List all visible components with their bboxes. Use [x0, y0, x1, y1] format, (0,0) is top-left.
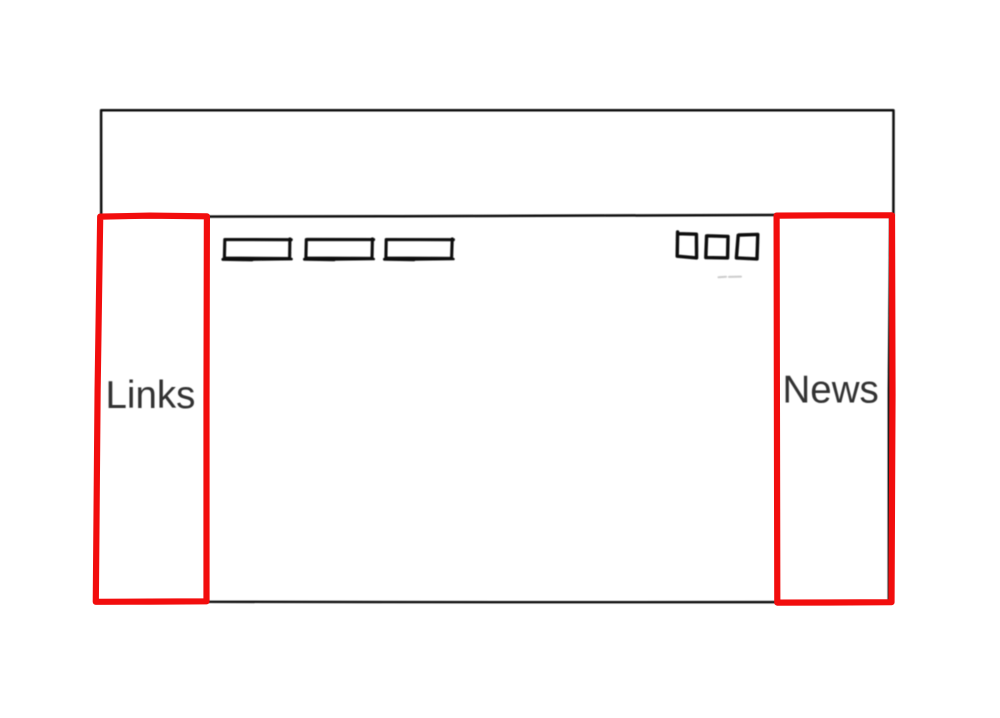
svg-text:News: News — [783, 369, 879, 412]
svg-text:Links: Links — [106, 374, 196, 417]
